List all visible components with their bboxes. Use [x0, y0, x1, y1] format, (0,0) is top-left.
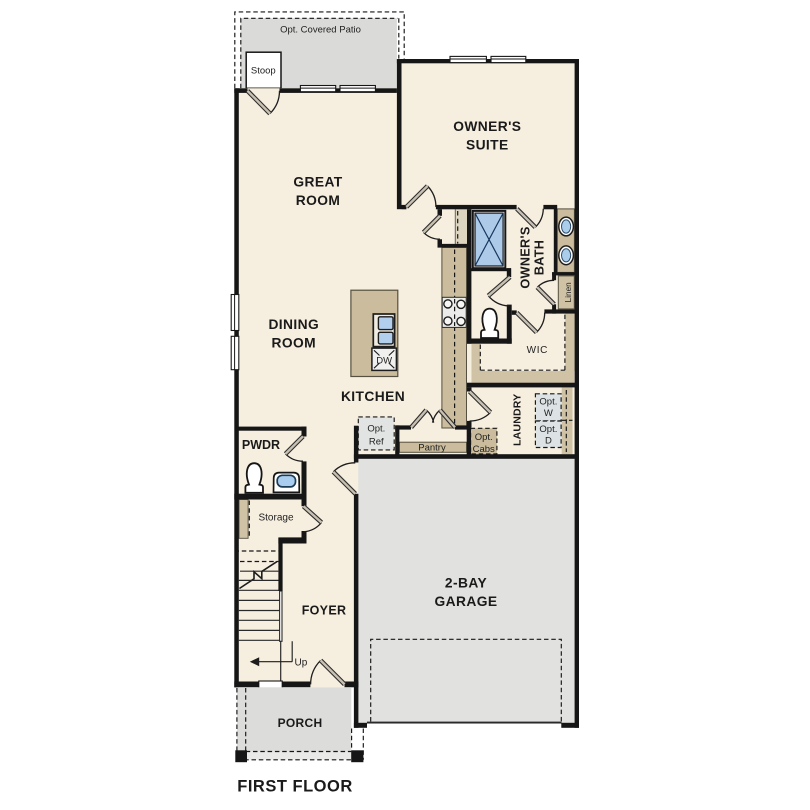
svg-text:Pantry: Pantry: [418, 442, 446, 453]
svg-text:OWNER'S: OWNER'S: [453, 119, 521, 134]
svg-text:Up: Up: [295, 657, 308, 668]
svg-text:Opt.: Opt.: [367, 424, 385, 435]
svg-text:WIC: WIC: [527, 345, 548, 356]
svg-text:Opt. Covered Patio: Opt. Covered Patio: [280, 25, 361, 36]
svg-text:FOYER: FOYER: [302, 604, 347, 618]
svg-text:PWDR: PWDR: [242, 438, 280, 452]
svg-text:Ref: Ref: [369, 437, 384, 448]
svg-text:2-BAY: 2-BAY: [445, 576, 487, 591]
svg-text:BATH: BATH: [533, 240, 547, 276]
svg-text:Opt.: Opt.: [539, 397, 557, 408]
svg-text:GREAT: GREAT: [293, 175, 342, 190]
svg-text:FIRST FLOOR: FIRST FLOOR: [237, 778, 353, 796]
svg-text:PORCH: PORCH: [278, 716, 323, 730]
svg-text:GARAGE: GARAGE: [435, 594, 498, 609]
svg-text:D: D: [545, 436, 552, 447]
svg-text:Linen: Linen: [564, 282, 573, 302]
svg-text:SUITE: SUITE: [466, 138, 509, 153]
svg-text:Opt.: Opt.: [475, 432, 493, 443]
svg-text:Stoop: Stoop: [251, 66, 276, 77]
svg-text:KITCHEN: KITCHEN: [341, 389, 405, 404]
svg-text:W: W: [544, 408, 553, 419]
svg-text:LAUNDRY: LAUNDRY: [512, 394, 524, 446]
svg-text:OWNER'S: OWNER'S: [518, 226, 532, 288]
svg-text:ROOM: ROOM: [296, 193, 341, 208]
svg-text:DINING: DINING: [268, 317, 319, 332]
svg-text:Opt.: Opt.: [539, 424, 557, 435]
svg-text:DW: DW: [376, 356, 392, 367]
svg-text:Cabs: Cabs: [473, 444, 495, 455]
svg-text:Storage: Storage: [258, 513, 293, 524]
svg-text:ROOM: ROOM: [272, 336, 317, 351]
